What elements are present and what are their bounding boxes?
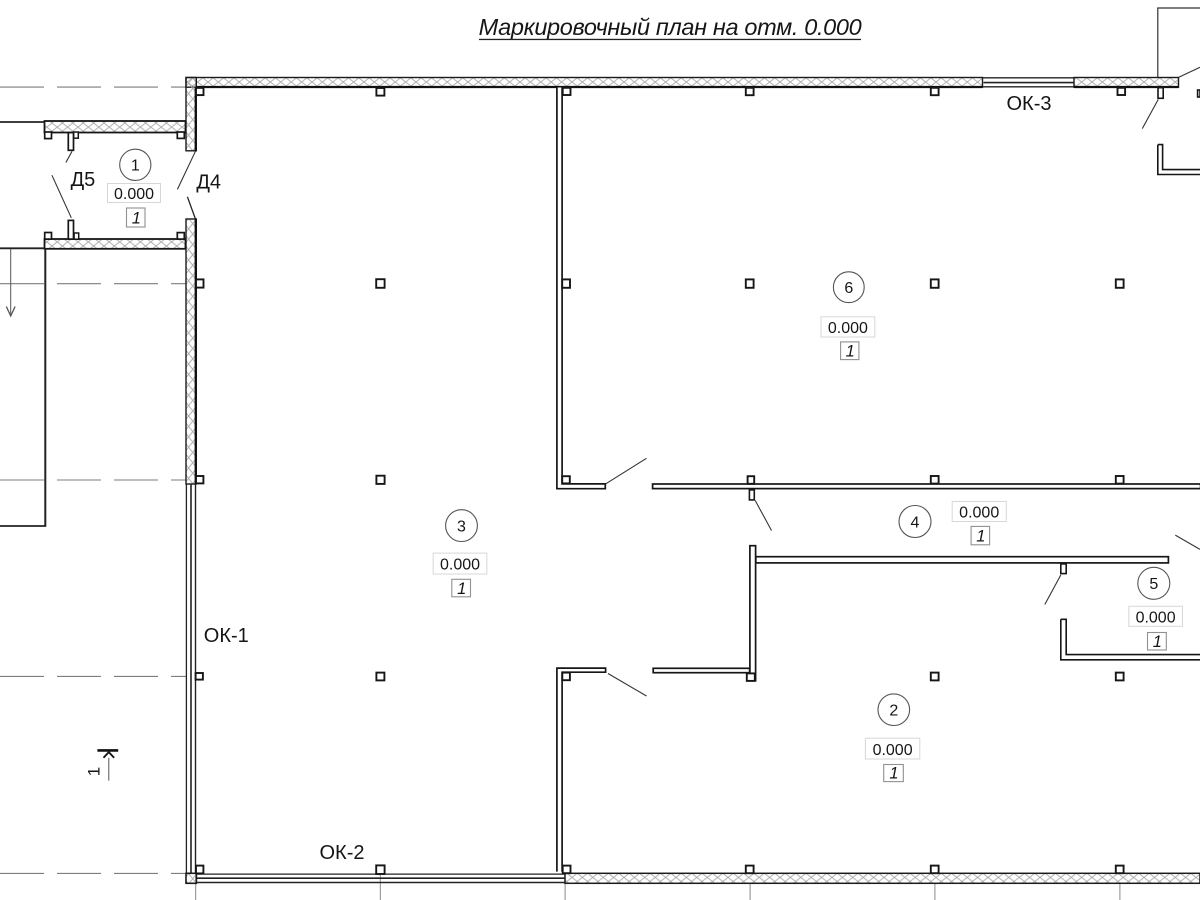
svg-text:0.000: 0.000 xyxy=(828,320,868,337)
svg-text:0.000: 0.000 xyxy=(959,505,999,522)
svg-text:1: 1 xyxy=(131,158,140,175)
svg-text:1: 1 xyxy=(889,765,898,783)
svg-text:0.000: 0.000 xyxy=(873,742,913,759)
svg-text:2: 2 xyxy=(889,703,898,720)
svg-text:0.000: 0.000 xyxy=(114,186,154,203)
svg-text:Д4: Д4 xyxy=(196,171,221,193)
svg-text:1: 1 xyxy=(132,209,141,227)
svg-text:Д5: Д5 xyxy=(71,169,96,191)
svg-text:Маркировочный план на отм. 0.0: Маркировочный план на отм. 0.000 xyxy=(479,14,862,40)
svg-text:0.000: 0.000 xyxy=(440,557,480,574)
svg-text:ОК-1: ОК-1 xyxy=(204,625,249,647)
svg-text:ОК-2: ОК-2 xyxy=(320,842,365,864)
svg-text:ОК-3: ОК-3 xyxy=(1007,93,1052,115)
svg-text:1: 1 xyxy=(1153,633,1162,651)
svg-text:4: 4 xyxy=(911,514,920,531)
svg-text:6: 6 xyxy=(844,280,853,297)
svg-text:1: 1 xyxy=(846,343,855,361)
svg-text:1: 1 xyxy=(976,528,985,546)
svg-text:1: 1 xyxy=(85,767,104,776)
svg-text:0.000: 0.000 xyxy=(1136,610,1176,627)
svg-text:3: 3 xyxy=(457,518,466,535)
svg-text:1: 1 xyxy=(457,580,466,598)
svg-text:5: 5 xyxy=(1149,576,1158,593)
